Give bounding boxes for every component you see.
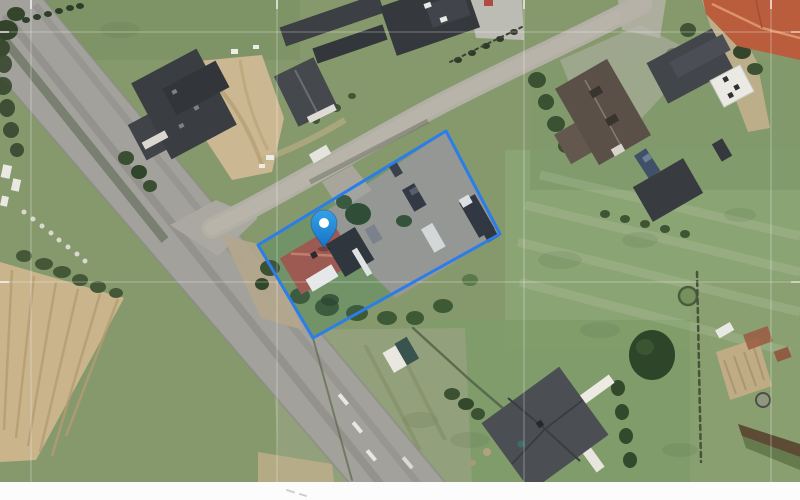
satellite-map[interactable] <box>0 0 800 500</box>
bottom-margin <box>0 482 800 500</box>
well <box>756 393 770 407</box>
pin-inner-circle <box>319 218 329 228</box>
red-car <box>484 0 493 6</box>
tree-ring <box>679 287 697 305</box>
